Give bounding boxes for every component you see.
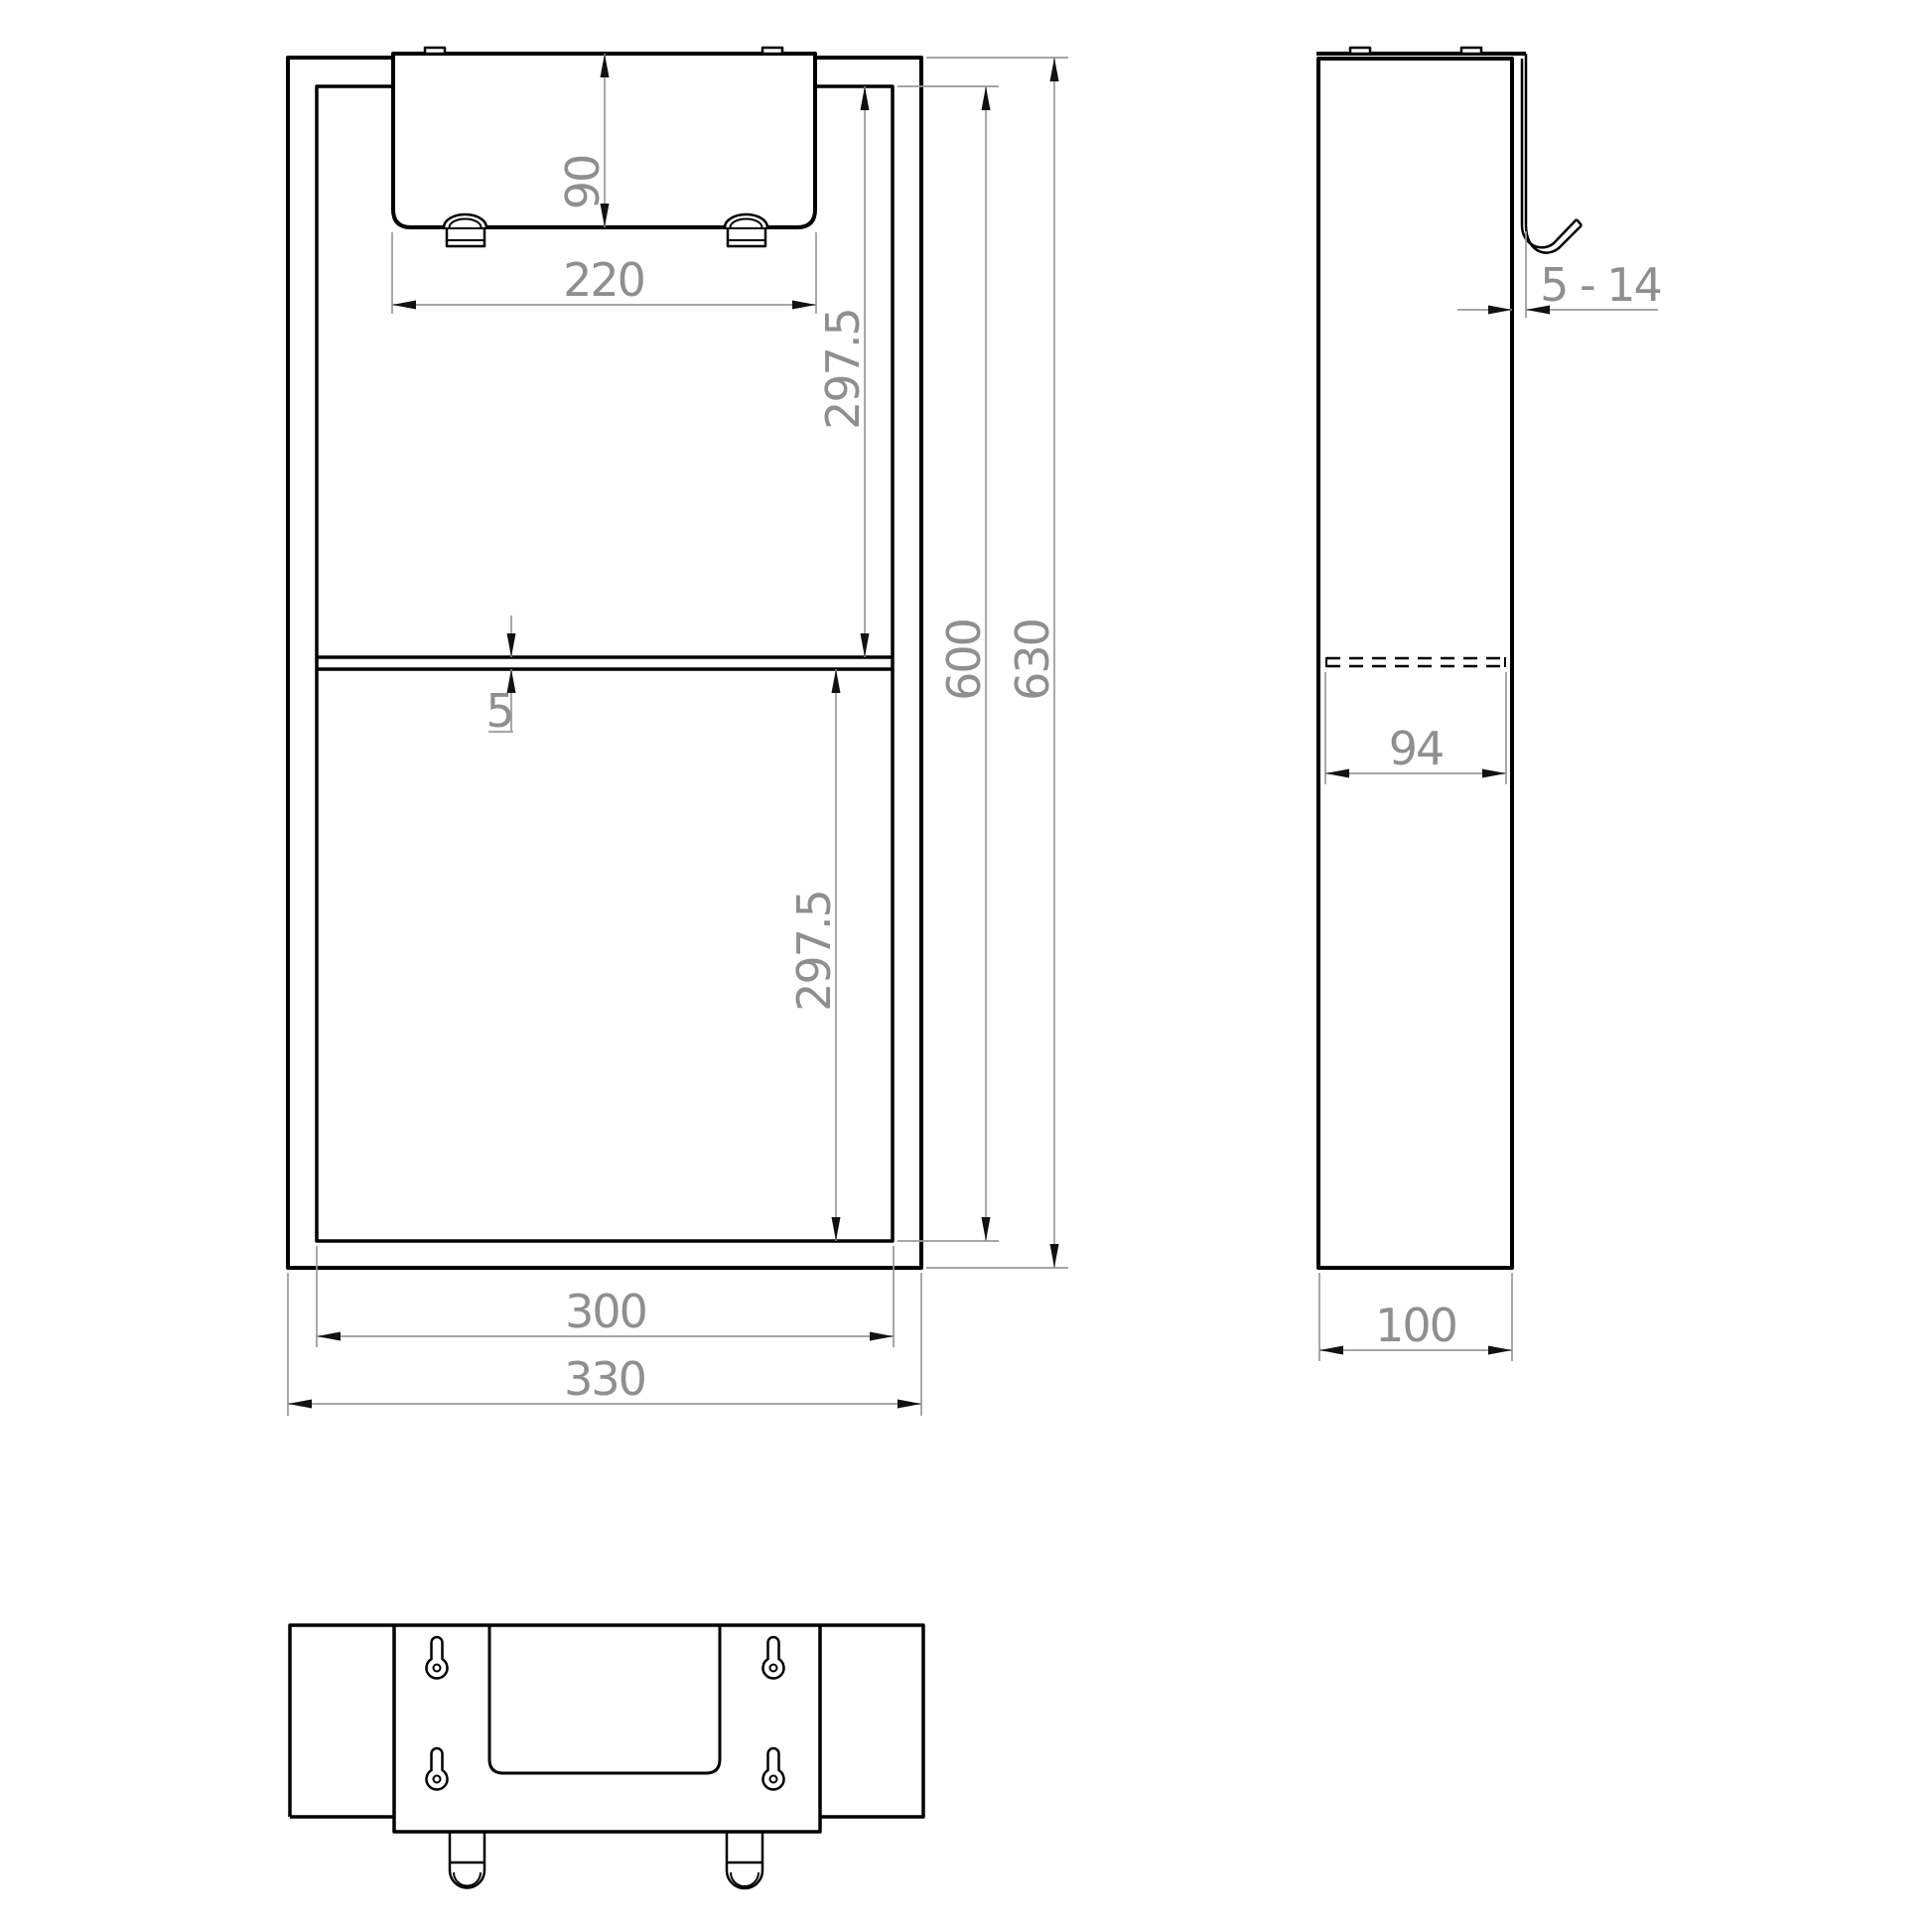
side-tab-left xyxy=(1350,48,1370,54)
bottom-window xyxy=(489,1625,720,1773)
dim-label-94: 94 xyxy=(1389,722,1444,775)
arrowhead-down xyxy=(1050,1244,1059,1268)
side-hook-plate xyxy=(1522,54,1582,253)
keyhole-center xyxy=(770,1776,777,1783)
dim-297-lower: 297.5 xyxy=(787,669,841,1241)
dim-5: 5 xyxy=(485,616,515,738)
arrowhead-right xyxy=(1488,306,1512,315)
technical-drawing: 90 220 297.5 5 xyxy=(0,0,1932,1932)
keyhole-slot-top-left xyxy=(426,1637,447,1679)
foot-right xyxy=(727,1832,762,1888)
dim-label-220: 220 xyxy=(563,253,644,307)
dim-94: 94 xyxy=(1325,672,1506,784)
dim-label-100: 100 xyxy=(1375,1299,1456,1352)
bracket-hook-right xyxy=(725,214,767,246)
dim-220: 220 xyxy=(392,232,816,314)
arrowhead-up xyxy=(861,86,870,110)
arrowhead-left xyxy=(1319,1346,1343,1355)
hook-foot xyxy=(447,227,484,246)
dim-label-297-upper: 297.5 xyxy=(816,309,870,430)
keyhole-center xyxy=(770,1665,777,1672)
keyhole-slot-bottom-right xyxy=(762,1748,783,1790)
dim-label-5: 5 xyxy=(485,684,512,738)
dim-label-600: 600 xyxy=(937,620,991,701)
arrowhead-down xyxy=(861,633,870,657)
arrowhead-right xyxy=(792,301,816,310)
bracket-tab-right xyxy=(762,48,782,54)
arrowhead-left xyxy=(317,1332,341,1341)
keyhole-slot-bottom-left xyxy=(426,1748,447,1790)
front-view: 90 220 297.5 5 xyxy=(288,48,1068,1416)
side-body xyxy=(1318,59,1512,1268)
dim-300: 300 xyxy=(317,1246,894,1347)
keyhole-center xyxy=(434,1665,441,1672)
foot-left xyxy=(450,1832,484,1888)
arrowhead-right xyxy=(1482,769,1506,778)
dim-label-300: 300 xyxy=(565,1285,646,1338)
dim-label-297-lower: 297.5 xyxy=(787,891,841,1012)
arrowhead-down xyxy=(832,1217,841,1241)
bottom-profile xyxy=(290,1625,923,1832)
arrowhead-down xyxy=(507,633,516,657)
arrowhead-down xyxy=(982,1217,991,1241)
front-shelf xyxy=(317,657,893,669)
arrowhead-left xyxy=(288,1400,312,1409)
keyhole-slot-top-right xyxy=(762,1637,783,1679)
hook-foot xyxy=(728,227,765,246)
dim-100: 100 xyxy=(1319,1273,1512,1361)
arrowhead-left xyxy=(392,301,416,310)
arrowhead-right xyxy=(1488,1346,1512,1355)
hook-curve-outer xyxy=(1526,225,1582,253)
arrowhead-up xyxy=(1050,58,1059,81)
side-shelf-hidden xyxy=(1326,657,1505,667)
arrowhead-right xyxy=(897,1400,921,1409)
dim-label-5-14: 5 - 14 xyxy=(1540,258,1661,312)
front-outer-frame xyxy=(288,58,921,1268)
dim-600: 600 xyxy=(897,86,999,1241)
keyhole-center xyxy=(434,1776,441,1783)
bracket-tab-left xyxy=(425,48,445,54)
bottom-view xyxy=(290,1625,923,1888)
dim-5-14: 5 - 14 xyxy=(1457,231,1661,318)
dim-297-upper: 297.5 xyxy=(816,86,870,657)
dim-label-630: 630 xyxy=(1006,620,1059,701)
bracket-hook-left xyxy=(444,214,486,246)
hook-tip xyxy=(1577,219,1582,225)
hook-curve-inner xyxy=(1522,219,1577,247)
arrowhead-up xyxy=(982,86,991,110)
dim-label-330: 330 xyxy=(564,1352,645,1406)
side-tab-right xyxy=(1461,48,1481,54)
dim-label-90: 90 xyxy=(556,156,610,210)
arrowhead-left xyxy=(1325,769,1349,778)
arrowhead-up xyxy=(832,669,841,693)
arrowhead-right xyxy=(870,1332,894,1341)
side-view: 5 - 14 94 100 xyxy=(1316,48,1661,1361)
